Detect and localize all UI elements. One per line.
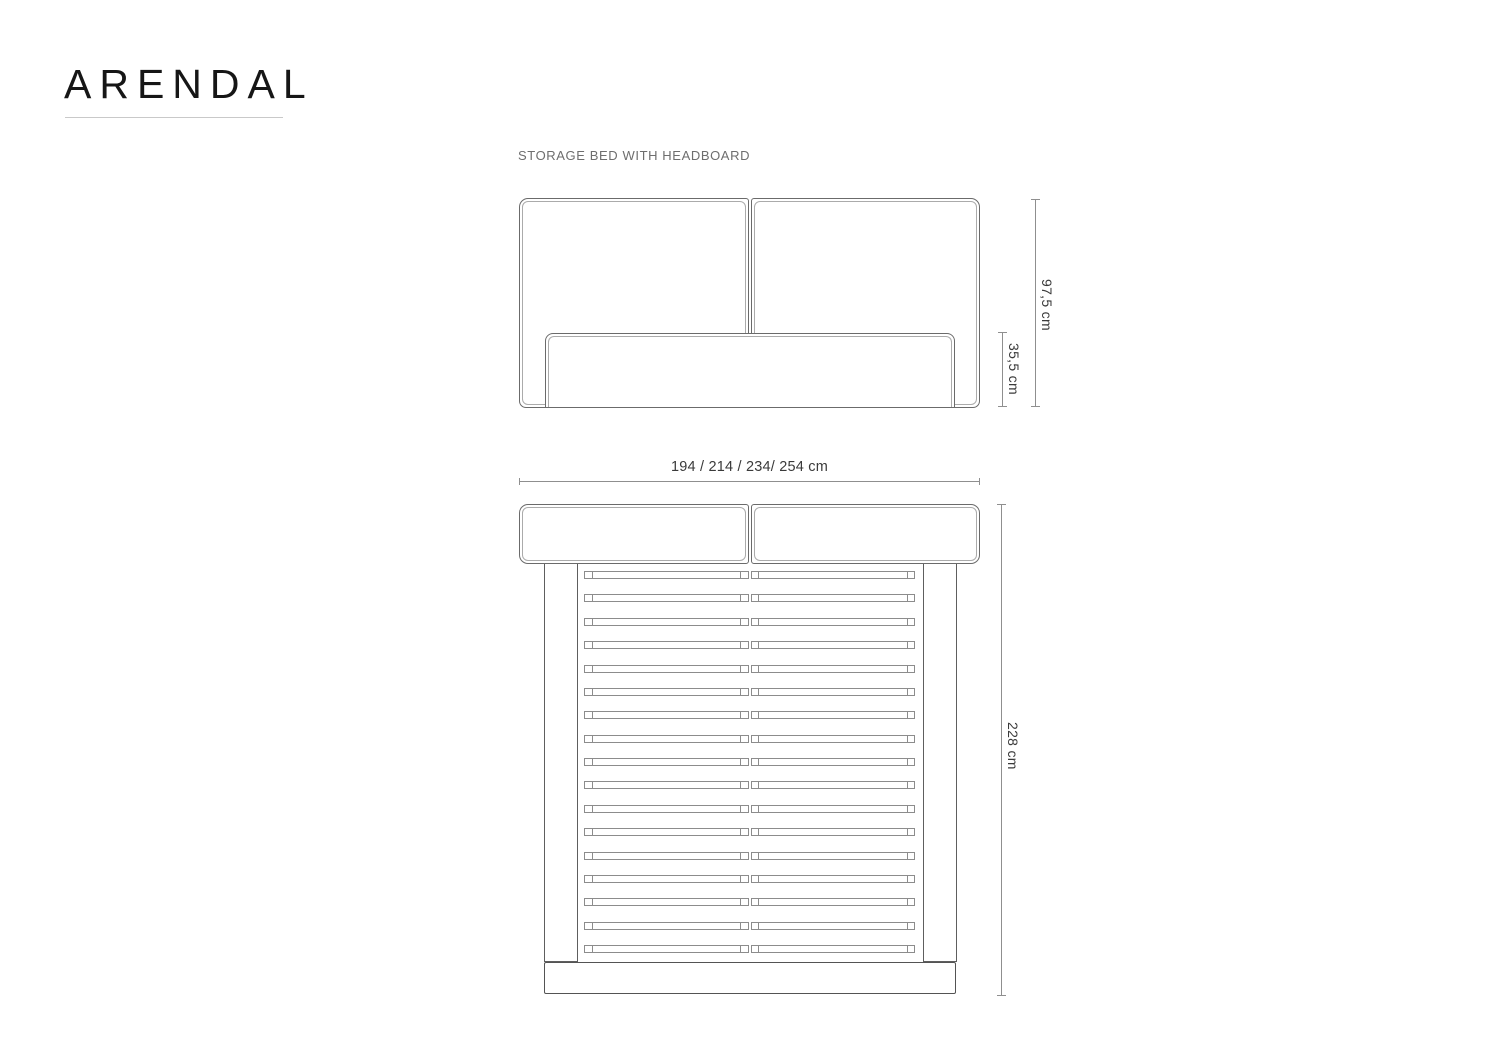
slat-right-half	[751, 922, 916, 930]
product-title: ARENDAL	[64, 64, 314, 105]
headboard-left-panel-top	[519, 504, 749, 564]
slat-left-half	[584, 711, 749, 719]
slat	[584, 571, 915, 579]
slat	[584, 781, 915, 789]
headboard-right-panel-top	[751, 504, 980, 564]
slat	[584, 688, 915, 696]
bed-frame-left-rail	[544, 560, 578, 962]
slat-right-half	[751, 945, 916, 953]
bed-frame-right-rail	[923, 560, 957, 962]
slat-right-half	[751, 641, 916, 649]
bed-base-panel-front	[545, 333, 955, 408]
slat-right-half	[751, 781, 916, 789]
slat-left-half	[584, 758, 749, 766]
slat	[584, 735, 915, 743]
slat-area	[584, 571, 915, 953]
slat	[584, 898, 915, 906]
width-dimension-line	[519, 481, 980, 482]
slat-left-half	[584, 665, 749, 673]
title-underline	[65, 117, 283, 118]
slat-right-half	[751, 594, 916, 602]
slat-left-half	[584, 735, 749, 743]
slat	[584, 922, 915, 930]
product-subtitle: STORAGE BED WITH HEADBOARD	[518, 148, 750, 163]
length-dimension-line	[1001, 504, 1002, 996]
slat	[584, 875, 915, 883]
slat	[584, 618, 915, 626]
slat-left-half	[584, 781, 749, 789]
overall-height-dimension-line	[1035, 199, 1036, 407]
slat-right-half	[751, 688, 916, 696]
slat-right-half	[751, 571, 916, 579]
slat-left-half	[584, 805, 749, 813]
slat-left-half	[584, 688, 749, 696]
slat-left-half	[584, 618, 749, 626]
slat	[584, 594, 915, 602]
slat-left-half	[584, 922, 749, 930]
slat	[584, 641, 915, 649]
slat	[584, 945, 915, 953]
overall-height-dimension-label: 97,5 cm	[1039, 279, 1055, 331]
slat-right-half	[751, 735, 916, 743]
slat-left-half	[584, 641, 749, 649]
slat-right-half	[751, 665, 916, 673]
slat-right-half	[751, 618, 916, 626]
slat-right-half	[751, 852, 916, 860]
slat-left-half	[584, 945, 749, 953]
slat-left-half	[584, 898, 749, 906]
slat-right-half	[751, 758, 916, 766]
slat	[584, 665, 915, 673]
slat-right-half	[751, 828, 916, 836]
slat	[584, 758, 915, 766]
slat-left-half	[584, 571, 749, 579]
slat	[584, 711, 915, 719]
slat-right-half	[751, 711, 916, 719]
slat-left-half	[584, 828, 749, 836]
slat-left-half	[584, 852, 749, 860]
slat-left-half	[584, 875, 749, 883]
slat-right-half	[751, 898, 916, 906]
length-dimension-label: 228 cm	[1005, 722, 1021, 770]
slat-left-half	[584, 594, 749, 602]
base-height-dimension-line	[1002, 332, 1003, 407]
slat	[584, 852, 915, 860]
base-height-dimension-label: 35,5 cm	[1006, 343, 1022, 395]
width-dimension-label: 194 / 214 / 234/ 254 cm	[519, 459, 980, 475]
slat	[584, 828, 915, 836]
slat-right-half	[751, 805, 916, 813]
bed-frame-foot-rail	[544, 962, 956, 994]
slat	[584, 805, 915, 813]
slat-right-half	[751, 875, 916, 883]
